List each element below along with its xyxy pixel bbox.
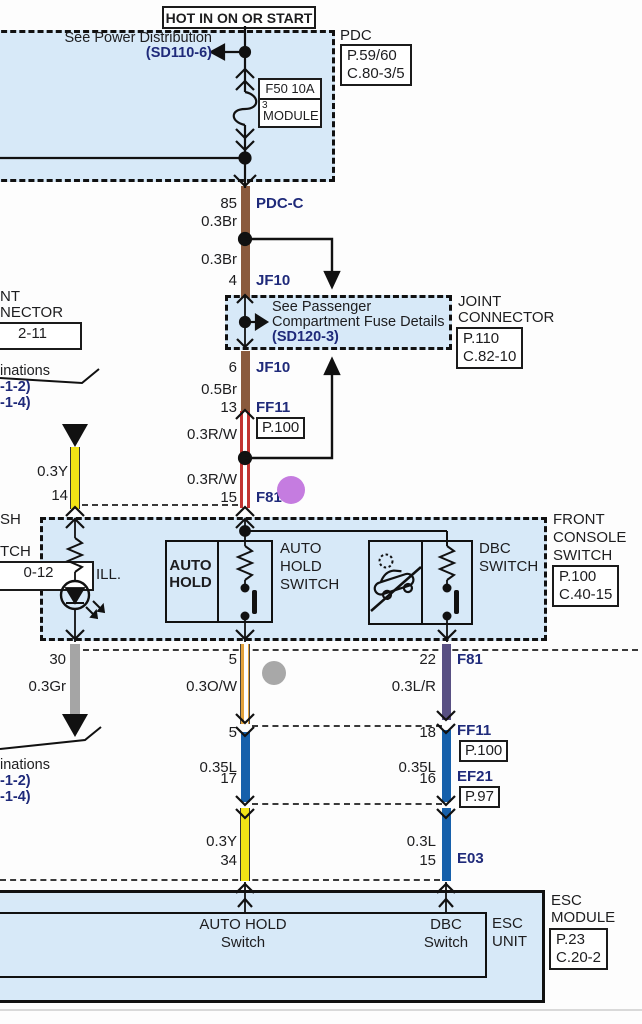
offpage-terminator-bottom <box>0 714 101 749</box>
auto-hold-button-line2: HOLD <box>165 574 216 591</box>
wire-0.3O-W <box>240 644 250 724</box>
esc-module-label-2: MODULE <box>551 909 615 926</box>
pdc-page: P.59/60 <box>347 47 405 65</box>
cell-divider <box>217 542 219 621</box>
wire-0.35L-a <box>241 732 250 802</box>
connector-jf10-a: JF10 <box>256 272 290 289</box>
cut-link-sd-1-4-bottom[interactable]: -1-4) <box>0 789 31 806</box>
cut-link-sd-1-4-top[interactable]: -1-4) <box>0 395 31 412</box>
wire-label-03rw-a: 0.3R/W <box>187 426 237 443</box>
pdc-ref-box: P.59/60 C.80-3/5 <box>340 44 412 86</box>
esc-unit-label-1: ESC <box>492 915 523 932</box>
esc-ref-box: P.23 C.20-2 <box>549 928 608 970</box>
joint-label-1: JOINT <box>458 293 501 310</box>
joint-page: P.110 <box>463 330 516 348</box>
hot-in-on-label-box: HOT IN ON OR START <box>162 6 316 29</box>
console-ref-box: P.100 C.40-15 <box>552 565 619 607</box>
pin-5b: 5 <box>229 724 237 741</box>
front-console-label-2: CONSOLE <box>553 529 626 546</box>
dbc-switch-label-1: DBC <box>479 540 511 557</box>
wire-label-03rw-b: 0.3R/W <box>187 471 237 488</box>
auto-hold-switch-label-2: HOLD <box>280 558 322 575</box>
wire-label-03l: 0.3L <box>407 833 436 850</box>
connector-pdc-c: PDC-C <box>256 195 304 212</box>
connector-jf10-b: JF10 <box>256 359 290 376</box>
sd110-link[interactable]: (SD110-6) <box>146 45 212 62</box>
esc-auto-hold-label-2: Switch <box>183 934 303 951</box>
pin-18: 18 <box>419 724 436 741</box>
console-conn: C.40-15 <box>559 586 612 604</box>
auto-hold-button-line1: AUTO <box>165 557 216 574</box>
wire-0.3Gr <box>70 644 80 716</box>
console-page: P.100 <box>559 568 612 586</box>
fuse-box: F50 10A 3 MODULE <box>258 78 322 128</box>
fuse-owner: MODULE <box>260 100 320 123</box>
wire-label-05br: 0.5Br <box>201 381 237 398</box>
wire-label-03br-b: 0.3Br <box>201 251 237 268</box>
wire-0.3R-W <box>240 411 250 508</box>
auto-hold-button[interactable]: AUTO HOLD <box>165 557 216 591</box>
fuse-number: 3 <box>262 100 268 111</box>
hot-label: HOT IN ON OR START <box>166 10 313 26</box>
connector-e03: E03 <box>457 850 484 867</box>
wire-0.3L-R <box>442 644 451 720</box>
ef21-page-box: P.97 <box>459 786 500 808</box>
pin-22: 22 <box>419 651 436 668</box>
left-cut-ref-box-mid: 0-12 <box>0 561 94 591</box>
connector-boundary-ef21 <box>252 803 442 805</box>
fuse-name: F50 10A <box>260 80 320 100</box>
connector-boundary-ff11 <box>252 725 442 727</box>
esc-auto-hold-label-1: AUTO HOLD <box>183 916 303 933</box>
cut-link-sd-1-2-top[interactable]: -1-2) <box>0 379 31 396</box>
pdc-label: PDC <box>340 27 372 44</box>
cut-label-sh: SH <box>0 511 21 528</box>
auto-hold-switch-label-1: AUTO <box>280 540 321 557</box>
pin-14: 14 <box>51 487 68 504</box>
sd120-link[interactable]: (SD120-3) <box>272 329 339 346</box>
wire-label-03lr: 0.3L/R <box>392 678 436 695</box>
wire-0.3Y-b <box>240 808 250 881</box>
pin-4: 4 <box>229 272 237 289</box>
ill-label: ILL. <box>96 566 121 583</box>
cut-label-inations-bottom: inations <box>0 757 50 774</box>
ff11-page-box: P.100 <box>256 417 305 439</box>
dbc-switch-label-2: SWITCH <box>479 558 538 575</box>
wire-label-03br-a: 0.3Br <box>201 213 237 230</box>
joint-label-2: CONNECTOR <box>458 309 554 326</box>
pin-16: 16 <box>419 770 436 787</box>
connector-boundary-esc <box>0 879 440 881</box>
pin-15b: 15 <box>419 852 436 869</box>
pin-5a: 5 <box>229 651 237 668</box>
ff11-page: P.100 <box>262 419 299 436</box>
ff11b-page-box: P.100 <box>459 740 508 762</box>
connector-f81-b: F81 <box>457 651 483 668</box>
front-console-label-3: SWITCH <box>553 547 612 564</box>
cut-label-tch: TCH <box>0 543 31 560</box>
auto-hold-switch-label-3: SWITCH <box>280 576 339 593</box>
wire-label-03gr: 0.3Gr <box>28 678 66 695</box>
esc-module-label-1: ESC <box>551 892 582 909</box>
connector-boundary-f81 <box>82 504 238 506</box>
cut-label-inations-top: inations <box>0 363 50 380</box>
pin-6: 6 <box>229 359 237 376</box>
pin-34: 34 <box>220 852 237 869</box>
cut-label-nector: NECTOR <box>0 304 63 321</box>
esc-conn: C.20-2 <box>556 949 601 967</box>
gray-annotation-dot <box>262 661 286 685</box>
cut-link-sd-1-2-bottom[interactable]: -1-2) <box>0 773 31 790</box>
dbc-switch-cell <box>368 540 473 625</box>
wire-label-03ow: 0.3O/W <box>186 678 237 695</box>
wire-0.5Br <box>241 351 250 411</box>
connector-ef21: EF21 <box>457 768 493 785</box>
connector-boundary-console <box>73 649 638 651</box>
pin-17: 17 <box>220 770 237 787</box>
pin-13: 13 <box>220 399 237 416</box>
page-divider-line <box>0 1009 642 1011</box>
wire-0.3Y-ill <box>70 447 80 509</box>
esc-dbc-label-1: DBC <box>396 916 496 933</box>
wire-0.3Br-a <box>241 186 250 298</box>
cell-divider <box>421 542 423 623</box>
wire-0.3L <box>442 808 451 881</box>
wire-0.35L-b <box>442 730 451 802</box>
pin-15: 15 <box>220 489 237 506</box>
pin-30: 30 <box>49 651 66 668</box>
wiring-diagram-page: HOT IN ON OR START F50 10A 3 MODULE P.59… <box>0 0 642 1024</box>
ff11b-page: P.100 <box>465 742 502 759</box>
pin-85: 85 <box>220 195 237 212</box>
ef21-page: P.97 <box>465 788 494 805</box>
joint-ref-box: P.110 C.82-10 <box>456 327 523 369</box>
connector-ff11-b: FF11 <box>457 722 491 739</box>
purple-annotation-dot <box>277 476 305 504</box>
left-cut-ref-top: 2-11 <box>18 325 47 342</box>
wire-label-03y-b: 0.3Y <box>206 833 237 850</box>
connector-ff11: FF11 <box>256 399 290 416</box>
esc-page: P.23 <box>556 931 601 949</box>
esc-unit-label-2: UNIT <box>492 933 527 950</box>
front-console-label-1: FRONT <box>553 511 605 528</box>
left-cut-ref-box-top: 2-11 <box>0 322 82 350</box>
left-cut-ref-mid: 0-12 <box>23 564 53 581</box>
esc-dbc-label-2: Switch <box>396 934 496 951</box>
cut-label-nt: NT <box>0 288 20 305</box>
pdc-conn: C.80-3/5 <box>347 65 405 83</box>
joint-conn: C.82-10 <box>463 348 516 366</box>
wire-label-03y-ill: 0.3Y <box>37 463 68 480</box>
